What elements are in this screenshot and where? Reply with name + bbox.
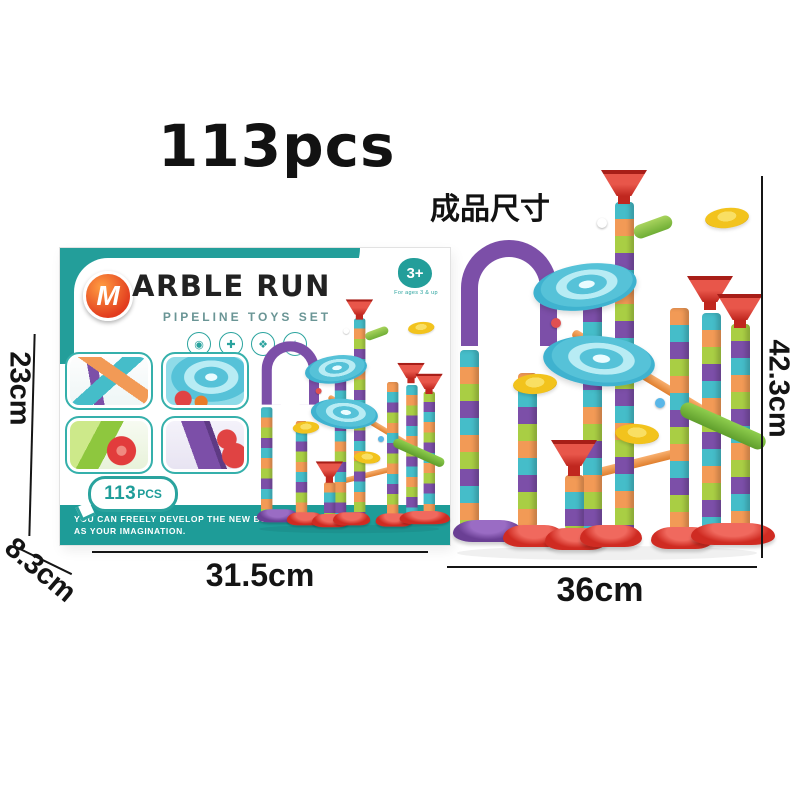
marble-green-track bbox=[632, 214, 674, 241]
marble-ball bbox=[551, 318, 561, 328]
marble-spiral-track bbox=[541, 331, 657, 391]
marble-flower-wheel bbox=[704, 206, 750, 230]
pcs-badge: 113 PCS bbox=[88, 476, 178, 512]
box-art-marble-run bbox=[258, 298, 441, 536]
assembled-structure-photo bbox=[455, 168, 760, 565]
marble-base bbox=[333, 512, 370, 525]
marble-green-track bbox=[364, 325, 389, 341]
box-height-label: 23cm bbox=[3, 334, 36, 444]
marble-base bbox=[580, 525, 642, 547]
product-box-photo: M ARBLE RUN PIPELINE TOYS SET ◉ ✚ ❖ ☆ 3+… bbox=[60, 248, 450, 545]
box-photo-panel bbox=[65, 416, 153, 474]
age-caption: For ages 3 & up bbox=[386, 290, 446, 296]
marble-tower bbox=[565, 475, 584, 530]
marble-ball bbox=[655, 398, 665, 408]
marble-ball bbox=[597, 218, 607, 228]
marble-funnel bbox=[601, 170, 647, 196]
slogan-line-2: AS YOUR IMAGINATION. bbox=[74, 526, 186, 536]
box-width-dimension-line bbox=[92, 551, 428, 553]
assembled-height-label: 42.3cm bbox=[762, 314, 795, 464]
box-photo-panel bbox=[161, 416, 249, 474]
floor-shadow bbox=[457, 546, 757, 560]
marble-ball bbox=[343, 328, 349, 334]
marble-ball bbox=[316, 388, 322, 394]
marble-slide bbox=[392, 437, 446, 468]
pcs-badge-unit: PCS bbox=[137, 487, 162, 501]
marble-funnel bbox=[717, 294, 763, 320]
marble-tower bbox=[460, 350, 479, 528]
panel-art-funnel bbox=[166, 357, 244, 405]
marble-ball bbox=[378, 436, 384, 442]
marble-funnel bbox=[346, 299, 374, 315]
marble-flower-wheel bbox=[407, 321, 435, 336]
marble-tower bbox=[335, 370, 346, 515]
marble-tower bbox=[324, 482, 335, 515]
assembled-width-label: 36cm bbox=[520, 571, 680, 610]
floor-shadow bbox=[259, 525, 439, 533]
marble-tower bbox=[518, 373, 537, 528]
marble-flower-wheel bbox=[292, 421, 319, 435]
box-photo-panel bbox=[65, 352, 153, 410]
marble-run-scene bbox=[455, 168, 760, 565]
marble-tower bbox=[670, 308, 689, 532]
assembled-width-dimension-line bbox=[447, 566, 757, 568]
pcs-badge-number: 113 bbox=[104, 483, 136, 505]
box-width-label: 31.5cm bbox=[160, 557, 360, 594]
product-listing-image: 113pcs 成品尺寸 M ARBLE RUN PIPELINE TOYS SE… bbox=[0, 0, 800, 800]
marble-slide bbox=[678, 400, 769, 452]
panel-art-slide bbox=[70, 421, 148, 469]
marble-tower bbox=[583, 288, 602, 530]
marble-tower bbox=[296, 421, 307, 514]
marble-tower bbox=[261, 407, 272, 514]
panel-art-base bbox=[166, 421, 244, 469]
marble-funnel bbox=[415, 374, 443, 390]
marble-run-scene bbox=[258, 298, 441, 536]
marble-spiral-track bbox=[310, 396, 380, 432]
panel-art-pieces bbox=[70, 357, 148, 405]
marble-tower bbox=[387, 382, 398, 516]
age-badge: 3+ bbox=[398, 258, 432, 288]
marble-base bbox=[400, 511, 450, 524]
box-photo-panel bbox=[161, 352, 249, 410]
pieces-count-title: 113pcs bbox=[158, 112, 396, 180]
